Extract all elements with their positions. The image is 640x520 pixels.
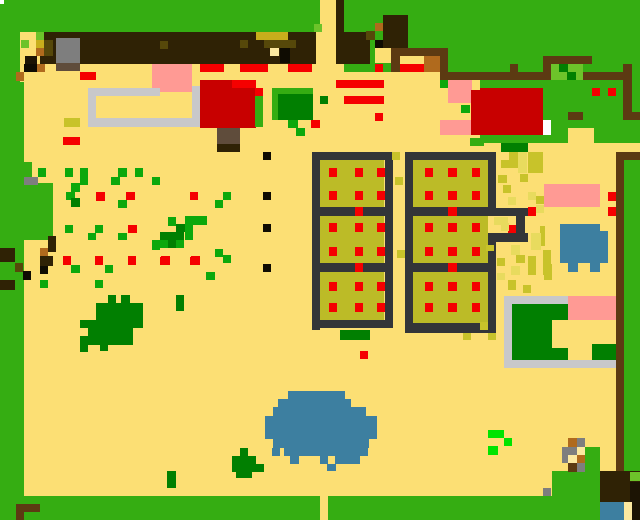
map-tile (375, 113, 383, 121)
plot-wall (488, 242, 496, 323)
map-tile (470, 138, 484, 146)
flower-row (240, 64, 268, 72)
map-tile (400, 56, 424, 64)
map-tile (80, 168, 88, 185)
paddock-frame (88, 88, 160, 96)
map-tile (135, 168, 143, 177)
map-tile (65, 225, 73, 233)
map-tile (508, 225, 516, 233)
tree-trunk (48, 236, 56, 252)
map-tile (497, 273, 505, 280)
map-tile (38, 168, 46, 177)
map-tile (448, 168, 457, 177)
map-tile (355, 223, 363, 232)
pond (273, 407, 366, 416)
map-tile (355, 191, 363, 200)
map-tile (272, 448, 280, 456)
map-tile (105, 265, 113, 273)
map-tile (63, 256, 71, 265)
map-tile (472, 247, 480, 256)
map-tile (392, 152, 400, 160)
map-tile (509, 152, 518, 160)
map-tile (40, 266, 48, 274)
map-tile (160, 41, 168, 49)
map-tile (463, 333, 471, 340)
map-tile (40, 248, 48, 256)
map-tile (543, 64, 551, 80)
map-tile (311, 120, 320, 128)
post-dot (263, 192, 271, 200)
map-tile (329, 303, 337, 312)
crop-plot-east (413, 160, 488, 323)
map-tile (377, 223, 385, 232)
map-tile (472, 223, 480, 232)
map-tile (400, 64, 424, 72)
sparkle (488, 430, 504, 438)
bottom-right-grass (552, 471, 600, 497)
pond (273, 439, 369, 448)
flower-bed (336, 80, 384, 88)
gate-ring (488, 208, 528, 216)
map-tile (36, 32, 44, 40)
map-tile (472, 168, 480, 177)
bush (232, 456, 256, 472)
map-tile (568, 128, 594, 144)
bottom-path-gap (320, 496, 328, 520)
map-tile (15, 263, 23, 272)
map-tile (480, 160, 488, 323)
map-tile (290, 456, 299, 464)
map-tile (215, 249, 223, 257)
flower-bed (344, 96, 384, 104)
map-tile (232, 80, 256, 88)
map-tile (128, 225, 137, 233)
map-tile (100, 345, 108, 351)
map-tile (511, 245, 520, 255)
map-tile (472, 191, 480, 200)
map-tile (255, 96, 263, 127)
map-tile (44, 40, 53, 56)
blue-animal-head (600, 231, 608, 263)
map-tile (256, 464, 264, 472)
map-tile (355, 303, 363, 312)
pond (265, 416, 377, 439)
map-tile (377, 247, 385, 256)
map-tile (206, 272, 215, 280)
map-tile (377, 282, 385, 291)
map-tile (448, 191, 457, 200)
map-tile (425, 247, 433, 256)
map-tile (528, 207, 536, 216)
plot-divider (312, 207, 393, 216)
map-tile (375, 64, 383, 72)
map-tile (425, 303, 433, 312)
campsite (568, 438, 577, 447)
map-tile (472, 282, 480, 291)
map-tile (608, 192, 616, 201)
map-tile (264, 40, 296, 48)
map-tile (36, 40, 44, 48)
map-tile (168, 240, 176, 248)
world-map[interactable] (0, 0, 640, 520)
vertical-path (320, 0, 336, 152)
map-tile (223, 192, 231, 200)
east-fence-line (616, 160, 624, 471)
map-tile (608, 88, 616, 96)
map-tile (71, 183, 80, 192)
map-tile (520, 174, 528, 182)
map-tile (65, 168, 73, 177)
map-tile (498, 175, 507, 183)
right-grass-border (624, 152, 640, 520)
map-tile (37, 64, 45, 72)
map-tile (121, 295, 130, 303)
map-tile (480, 322, 488, 330)
map-corner-pixel (0, 0, 4, 4)
map-tile (217, 144, 240, 152)
garden-patch (592, 344, 616, 360)
map-tile (327, 464, 336, 471)
flower-row (288, 64, 312, 72)
map-tile (375, 23, 383, 31)
south-fence (16, 512, 24, 520)
map-tile (448, 303, 457, 312)
gate-ring (516, 216, 525, 233)
campsite (568, 463, 577, 472)
map-tile (329, 247, 337, 256)
plot-divider (312, 263, 393, 272)
garden-frame (504, 304, 512, 368)
map-tile (497, 258, 505, 266)
campsite (577, 447, 585, 455)
map-tile (16, 72, 24, 81)
map-tile (118, 233, 127, 240)
map-tile (552, 320, 568, 348)
left-grass-bulge (0, 183, 53, 240)
map-tile (223, 255, 231, 263)
map-tile (583, 72, 592, 80)
map-tile (128, 256, 136, 265)
map-tile (240, 448, 248, 456)
pond (278, 399, 351, 407)
garden-frame (504, 296, 568, 304)
map-tile (355, 168, 363, 177)
map-tile (559, 64, 568, 72)
plot-hedge (340, 330, 370, 340)
stone-bit (24, 177, 38, 185)
map-tile (296, 128, 305, 136)
map-tile (56, 63, 80, 71)
map-tile (64, 118, 80, 127)
map-tile (425, 282, 433, 291)
map-tile (531, 233, 541, 250)
campsite (577, 455, 585, 463)
map-tile (440, 80, 448, 88)
map-tile (567, 72, 576, 80)
map-tile (24, 64, 37, 72)
map-tile (329, 191, 337, 200)
map-tile (425, 168, 433, 177)
barn-door-east (543, 120, 551, 135)
map-tile (160, 232, 176, 240)
map-tile (111, 177, 120, 185)
map-tile (176, 224, 185, 232)
post-dot (263, 264, 271, 272)
map-tile (118, 200, 127, 208)
map-tile (501, 160, 518, 168)
map-tile (96, 192, 105, 201)
map-tile (176, 232, 184, 240)
plot-wall (312, 152, 392, 160)
map-tile (88, 233, 96, 240)
map-tile (510, 64, 518, 72)
map-tile (508, 280, 516, 290)
map-tile (536, 205, 544, 213)
map-tile (461, 105, 470, 113)
map-tile (80, 345, 88, 352)
pink-plot-southeast (568, 296, 616, 320)
map-tile (71, 198, 80, 207)
stone-bit (543, 488, 551, 496)
map-tile (516, 255, 525, 263)
map-tile (425, 223, 433, 232)
map-tile (568, 112, 583, 120)
map-tile (360, 351, 368, 359)
map-tile (161, 256, 170, 265)
campsite (577, 438, 585, 447)
map-tile (240, 40, 248, 48)
map-tile (623, 112, 640, 120)
map-tile (40, 256, 53, 266)
map-tile (523, 285, 531, 293)
plot-wall (408, 152, 496, 160)
map-tile (592, 88, 600, 96)
map-tile (236, 472, 252, 478)
map-tile (544, 264, 552, 280)
map-tile (624, 502, 632, 520)
map-tile (320, 96, 328, 104)
hedge-row (501, 143, 528, 152)
map-tile (448, 223, 457, 232)
map-tile (486, 245, 494, 251)
map-tile (80, 72, 96, 80)
plot-wall (405, 152, 413, 333)
plot-wall (312, 152, 320, 330)
map-tile (503, 185, 511, 193)
map-tile (377, 191, 385, 200)
plot-wall (488, 160, 496, 208)
tree-trunk-block (383, 15, 408, 48)
fence-line-top (336, 0, 344, 64)
map-tile (80, 328, 88, 336)
map-tile (23, 271, 31, 280)
map-tile (448, 247, 457, 256)
map-tile (511, 266, 520, 275)
map-tile (448, 263, 457, 272)
map-tile (21, 40, 29, 48)
map-tile (623, 64, 632, 72)
map-tile (501, 223, 509, 231)
campsite (568, 455, 577, 463)
sparkle (488, 446, 498, 455)
map-tile (528, 256, 536, 275)
map-tile (395, 177, 403, 185)
bottom-right-grass (585, 447, 600, 473)
map-tile (329, 223, 337, 232)
map-tile (355, 247, 363, 256)
post-dot (263, 152, 271, 160)
east-fence-corner (616, 152, 640, 160)
flower-row (200, 64, 224, 72)
pink-plot-east (544, 184, 600, 207)
map-tile (355, 282, 363, 291)
map-tile (160, 240, 168, 248)
map-tile (152, 177, 160, 185)
map-tile (95, 225, 103, 233)
map-tile (440, 48, 448, 72)
map-tile (152, 240, 160, 250)
map-tile (448, 207, 457, 216)
map-tile (488, 333, 496, 340)
map-tile (0, 280, 15, 290)
map-tile (355, 207, 363, 216)
map-tile (71, 265, 80, 273)
map-tile (280, 48, 290, 63)
map-tile (185, 224, 193, 240)
map-tile (508, 197, 516, 205)
paddock-frame (88, 118, 200, 127)
stone-block (56, 38, 80, 63)
map-tile (320, 456, 328, 464)
map-tile (167, 471, 176, 488)
blue-animal-leg (590, 263, 600, 272)
map-tile (63, 137, 80, 145)
map-tile (108, 295, 116, 303)
gate-ring (488, 233, 528, 242)
sparkle (504, 438, 512, 446)
crop-plot-west (320, 160, 384, 320)
map-tile (377, 303, 385, 312)
map-tile (335, 456, 360, 464)
map-tile (329, 168, 337, 177)
map-tile (472, 303, 480, 312)
map-tile (630, 472, 640, 481)
map-tile (518, 152, 527, 173)
map-tile (0, 248, 15, 262)
map-tile (366, 31, 375, 40)
path-edge-bush (314, 24, 322, 32)
map-tile (95, 256, 103, 265)
map-tile (95, 280, 103, 288)
tree-cluster-mid (278, 94, 313, 120)
map-tile (623, 80, 632, 112)
map-tile (425, 191, 433, 200)
map-tile (118, 168, 127, 177)
map-tile (176, 295, 184, 311)
map-tile (424, 56, 440, 72)
post-dot (263, 224, 271, 232)
map-tile (397, 250, 405, 258)
map-tile (215, 200, 223, 208)
map-tile (168, 217, 176, 226)
east-fence (592, 72, 632, 80)
map-tile (191, 256, 200, 265)
blue-animal-leg (568, 263, 578, 272)
southeast-water (600, 502, 624, 520)
pink-plot-northeast (448, 80, 472, 103)
map-tile (528, 152, 543, 173)
map-tile (377, 168, 385, 177)
red-strip-east (471, 90, 480, 135)
map-tile (375, 40, 383, 48)
map-tile (126, 192, 135, 200)
map-tile (536, 196, 544, 204)
pond (284, 448, 368, 456)
east-fence (440, 72, 543, 80)
map-tile (329, 282, 337, 291)
plot-wall (312, 320, 393, 328)
campsite (577, 463, 585, 472)
map-tile (528, 192, 536, 200)
garden-frame (504, 360, 616, 368)
map-tile (448, 282, 457, 291)
south-fence (16, 504, 40, 512)
red-barn-east (480, 88, 543, 135)
pink-plot-northeast (440, 120, 472, 135)
map-tile (256, 32, 288, 40)
map-tile (40, 280, 48, 288)
map-tile (176, 240, 184, 248)
map-tile (190, 192, 198, 200)
blue-animal-body (560, 224, 600, 263)
barn-door (217, 128, 240, 144)
plot-wall (385, 160, 393, 328)
map-tile (36, 48, 44, 56)
map-tile (608, 207, 616, 216)
map-tile (25, 56, 37, 64)
map-tile (270, 48, 279, 56)
map-tile (355, 263, 363, 272)
pen-outline (543, 56, 592, 64)
map-tile (288, 120, 298, 128)
pond (288, 391, 345, 399)
